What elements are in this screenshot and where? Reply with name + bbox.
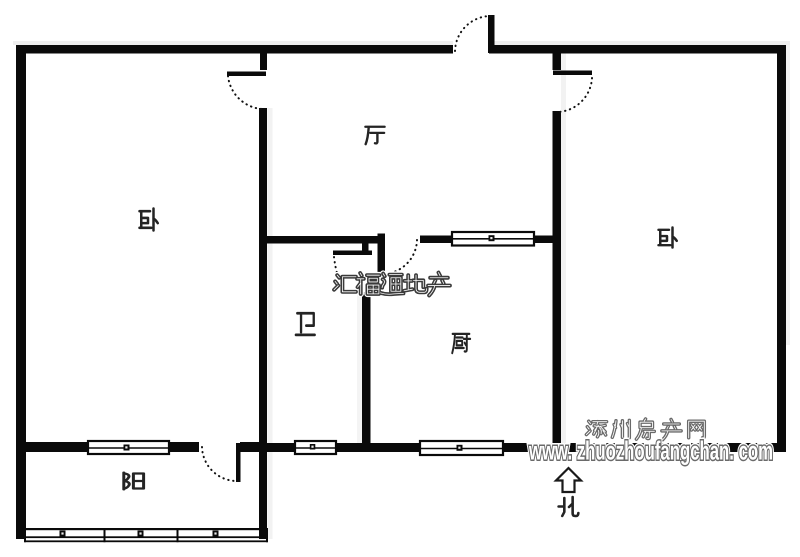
svg-text:www. zhuozhoufangchan. com: www. zhuozhoufangchan. com bbox=[528, 436, 773, 466]
